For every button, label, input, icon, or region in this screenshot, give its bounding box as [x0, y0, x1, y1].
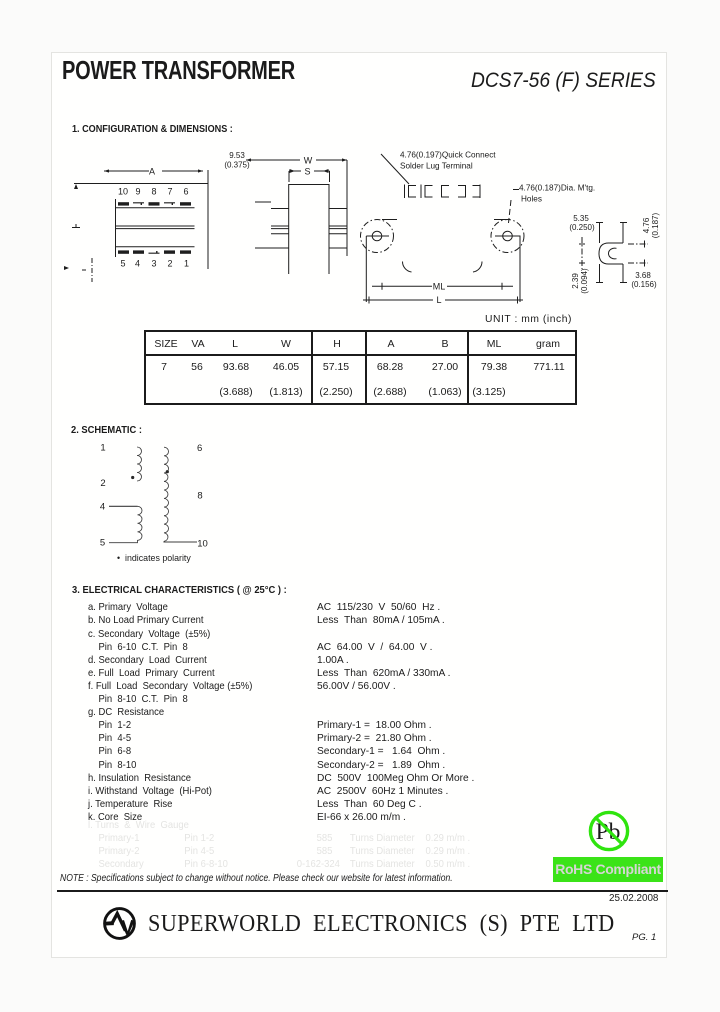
svg-text:3.68: 3.68: [635, 271, 651, 280]
svg-text:2: 2: [167, 259, 172, 269]
svg-text:W: W: [304, 156, 313, 166]
svg-text:(0.250): (0.250): [569, 223, 595, 232]
svg-text:ML: ML: [433, 281, 446, 291]
svg-text:(0.156): (0.156): [631, 280, 657, 289]
svg-text:4: 4: [100, 502, 105, 513]
svg-text:A: A: [149, 167, 155, 177]
svg-text:7: 7: [167, 187, 172, 197]
svg-text:10: 10: [118, 187, 128, 197]
svg-text:10: 10: [197, 539, 208, 550]
svg-text:8: 8: [197, 491, 202, 502]
svg-text:(0.094): (0.094): [580, 268, 589, 294]
svg-text:1: 1: [100, 443, 105, 454]
svg-text:(0.375): (0.375): [224, 161, 250, 170]
svg-text:3: 3: [151, 259, 156, 269]
svg-text:1: 1: [184, 259, 189, 269]
svg-text:Holes: Holes: [521, 195, 542, 204]
svg-text:4.76(0.187)Dia. M'tg.: 4.76(0.187)Dia. M'tg.: [519, 184, 595, 193]
svg-text:5: 5: [120, 259, 125, 269]
svg-text:5.35: 5.35: [573, 214, 589, 223]
svg-text:5: 5: [100, 538, 105, 549]
svg-text:4.76: 4.76: [642, 217, 651, 233]
svg-text:2.39: 2.39: [571, 273, 580, 289]
svg-text:S: S: [304, 167, 310, 177]
svg-text:4.76(0.197)Quick Connect: 4.76(0.197)Quick Connect: [400, 151, 496, 160]
svg-text:(0.187): (0.187): [651, 212, 660, 238]
svg-text:8: 8: [151, 187, 156, 197]
svg-text:4: 4: [135, 259, 140, 269]
svg-text:L: L: [436, 295, 441, 305]
svg-text:2: 2: [100, 478, 105, 489]
svg-text:9.53: 9.53: [229, 151, 245, 160]
svg-text:6: 6: [183, 187, 188, 197]
svg-text:Solder Lug Terminal: Solder Lug Terminal: [400, 162, 473, 171]
svg-text:9: 9: [135, 187, 140, 197]
svg-text:6: 6: [197, 443, 202, 454]
